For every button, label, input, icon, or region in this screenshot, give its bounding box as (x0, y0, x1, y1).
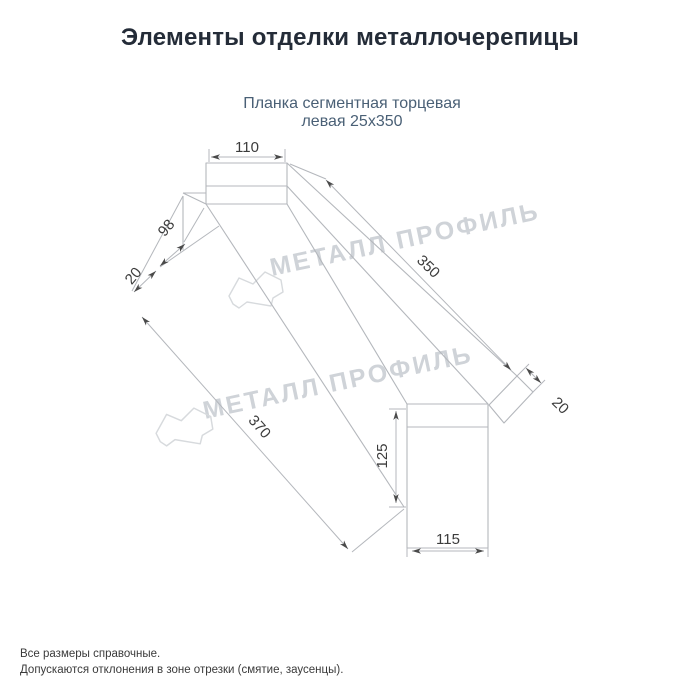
footer-note-line1: Все размеры справочные. (20, 646, 680, 662)
dimension-115-label: 115 (436, 531, 460, 548)
dimension-98-label: 98 (155, 216, 179, 240)
dimension-350-label: 350 (413, 252, 443, 282)
footer-note-line2: Допускаются отклонения в зоне отрезки (с… (20, 662, 680, 678)
technical-drawing-svg: 110 98 20 350 370 20 125 115 (0, 0, 700, 700)
dimension-350-line (326, 180, 511, 370)
dimension-20-right-line (526, 368, 541, 383)
dimension-125-label: 125 (374, 443, 391, 468)
dimension-labels: 110 98 20 350 370 20 125 115 (122, 139, 572, 548)
dimension-20-right-label: 20 (548, 394, 572, 418)
dimension-110-label: 110 (235, 139, 259, 156)
profile-outline (183, 163, 533, 548)
product-drawing-page: Элементы отделки металлочерепицы Планка … (0, 0, 700, 700)
dimension-370-line (142, 317, 348, 549)
footer-notes: Все размеры справочные. Допускаются откл… (20, 646, 680, 678)
dimension-lines (134, 157, 541, 551)
dimension-98-line (160, 244, 185, 266)
